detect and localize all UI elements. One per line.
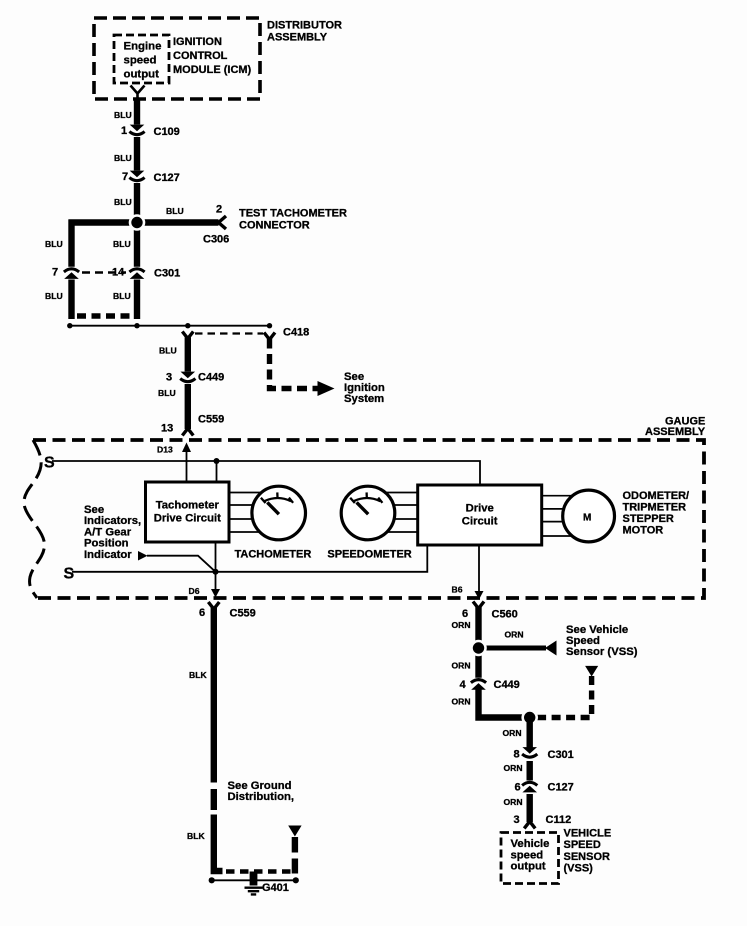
svg-text:G401: G401	[262, 882, 289, 894]
svg-text:SENSOR: SENSOR	[564, 851, 611, 863]
svg-text:3: 3	[166, 372, 172, 384]
svg-text:2: 2	[216, 204, 222, 216]
svg-text:Indicators,: Indicators,	[84, 515, 141, 527]
svg-text:MOTOR: MOTOR	[623, 525, 664, 537]
svg-text:SPEED: SPEED	[564, 839, 601, 851]
svg-text:BLU: BLU	[113, 291, 131, 301]
svg-text:Distribution,: Distribution,	[228, 791, 295, 803]
svg-text:Position: Position	[84, 538, 129, 550]
svg-text:C449: C449	[494, 679, 520, 691]
svg-text:C306: C306	[203, 234, 229, 246]
svg-text:TACHOMETER: TACHOMETER	[235, 549, 312, 561]
svg-text:output: output	[124, 69, 160, 81]
svg-text:S: S	[64, 566, 75, 583]
svg-text:BLU: BLU	[113, 239, 131, 249]
svg-text:speed: speed	[511, 849, 544, 861]
svg-text:6: 6	[515, 782, 521, 794]
svg-text:3: 3	[514, 814, 520, 826]
svg-text:8: 8	[514, 749, 520, 761]
svg-text:6: 6	[462, 608, 468, 620]
svg-text:Circuit: Circuit	[462, 516, 498, 528]
svg-text:6: 6	[199, 607, 205, 619]
svg-text:BLK: BLK	[187, 831, 205, 841]
svg-text:SPEEDOMETER: SPEEDOMETER	[327, 549, 411, 561]
svg-text:M: M	[583, 513, 591, 524]
svg-text:ASSEMBLY: ASSEMBLY	[267, 32, 328, 44]
svg-text:Tachometer: Tachometer	[156, 500, 220, 512]
svg-text:C109: C109	[154, 126, 180, 138]
svg-text:speed: speed	[124, 55, 157, 67]
svg-text:MODULE (ICM): MODULE (ICM)	[173, 64, 252, 76]
svg-text:C559: C559	[230, 608, 256, 620]
svg-text:ORN: ORN	[452, 620, 471, 630]
svg-text:13: 13	[161, 423, 173, 435]
svg-text:CONTROL: CONTROL	[173, 50, 228, 62]
svg-text:TRIPMETER: TRIPMETER	[623, 502, 687, 514]
svg-text:TEST TACHOMETER: TEST TACHOMETER	[239, 208, 347, 220]
svg-text:ASSEMBLY: ASSEMBLY	[645, 426, 706, 438]
svg-text:ORN: ORN	[452, 661, 471, 671]
svg-text:BLU: BLU	[159, 346, 177, 356]
svg-text:BLU: BLU	[114, 153, 132, 163]
svg-text:B6: B6	[452, 585, 463, 595]
svg-text:DISTRIBUTOR: DISTRIBUTOR	[267, 20, 342, 32]
svg-text:C559: C559	[198, 414, 224, 426]
svg-text:C127: C127	[154, 172, 180, 184]
svg-text:VEHICLE: VEHICLE	[564, 828, 612, 840]
svg-text:BLU: BLU	[114, 197, 132, 207]
svg-text:S: S	[44, 455, 55, 472]
svg-text:C449: C449	[198, 372, 224, 384]
svg-text:IGNITION: IGNITION	[173, 36, 222, 48]
svg-text:ORN: ORN	[503, 728, 522, 738]
svg-text:CONNECTOR: CONNECTOR	[239, 220, 310, 232]
svg-text:C418: C418	[283, 327, 309, 339]
svg-text:4: 4	[460, 679, 467, 691]
svg-text:C301: C301	[154, 268, 180, 280]
svg-text:STEPPER: STEPPER	[623, 513, 674, 525]
svg-text:BLU: BLU	[45, 291, 63, 301]
svg-text:BLK: BLK	[189, 670, 207, 680]
svg-text:C560: C560	[492, 609, 518, 621]
svg-text:BLU: BLU	[158, 388, 176, 398]
svg-text:Engine: Engine	[124, 41, 162, 53]
svg-text:Drive: Drive	[466, 503, 494, 515]
svg-text:Drive Circuit: Drive Circuit	[154, 513, 221, 525]
svg-text:ORN: ORN	[504, 763, 523, 773]
svg-text:Indicator: Indicator	[84, 549, 132, 561]
svg-text:output: output	[511, 861, 546, 873]
svg-text:ORN: ORN	[505, 630, 524, 640]
svg-text:BLU: BLU	[114, 110, 132, 120]
svg-text:BLU: BLU	[45, 239, 63, 249]
svg-text:A/T Gear: A/T Gear	[84, 526, 132, 538]
svg-text:ORN: ORN	[504, 797, 523, 807]
svg-text:Sensor (VSS): Sensor (VSS)	[566, 646, 638, 658]
svg-text:C112: C112	[546, 814, 572, 826]
svg-text:C301: C301	[548, 749, 574, 761]
svg-text:Vehicle: Vehicle	[511, 838, 550, 850]
svg-text:D13: D13	[157, 445, 173, 455]
svg-text:See: See	[84, 504, 104, 516]
svg-text:ODOMETER/: ODOMETER/	[623, 490, 690, 502]
svg-text:1: 1	[121, 125, 127, 137]
svg-text:System: System	[344, 393, 384, 405]
svg-text:7: 7	[52, 267, 58, 279]
svg-text:7: 7	[122, 171, 128, 183]
svg-text:(VSS): (VSS)	[564, 863, 594, 875]
svg-text:C127: C127	[548, 782, 574, 794]
svg-text:ORN: ORN	[452, 697, 471, 707]
svg-text:D6: D6	[189, 586, 200, 596]
svg-text:BLU: BLU	[166, 206, 184, 216]
